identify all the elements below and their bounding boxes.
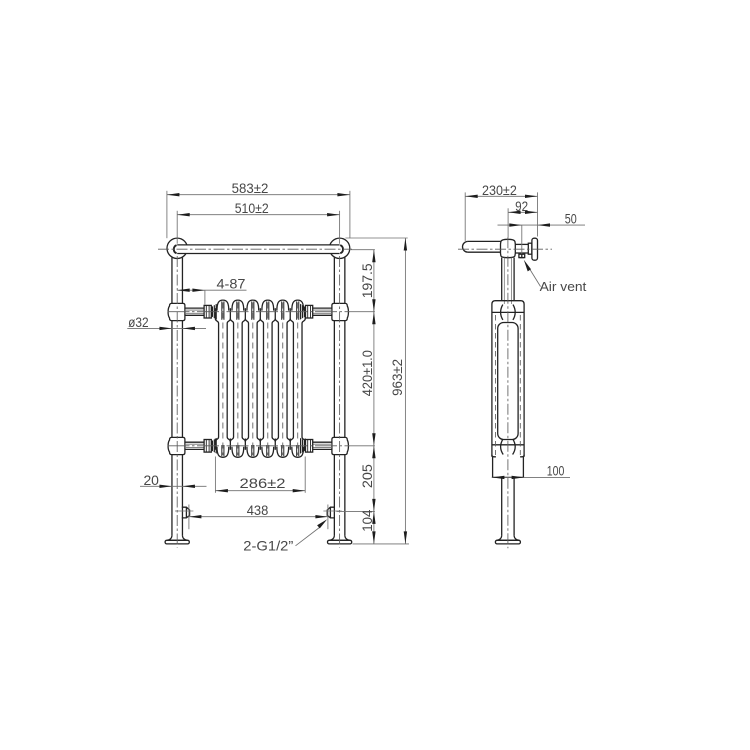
svg-text:230±2: 230±2: [482, 182, 517, 198]
svg-text:205: 205: [359, 464, 375, 488]
svg-text:197.5: 197.5: [359, 263, 375, 298]
svg-text:104: 104: [359, 509, 375, 531]
svg-text:100: 100: [547, 462, 565, 478]
svg-text:963±2: 963±2: [389, 359, 405, 396]
svg-text:92: 92: [515, 198, 528, 214]
svg-text:50: 50: [565, 211, 577, 227]
svg-text:2-G1/2”: 2-G1/2”: [243, 538, 293, 554]
svg-text:20: 20: [143, 472, 159, 488]
svg-text:Air vent: Air vent: [540, 279, 587, 294]
svg-text:583±2: 583±2: [232, 180, 269, 196]
svg-text:4-87: 4-87: [217, 275, 246, 291]
svg-text:438: 438: [247, 502, 269, 518]
svg-text:420±1.0: 420±1.0: [359, 350, 375, 396]
svg-text:510±2: 510±2: [235, 200, 269, 216]
svg-text:286±2: 286±2: [240, 475, 286, 491]
svg-text:ø32: ø32: [128, 314, 149, 330]
